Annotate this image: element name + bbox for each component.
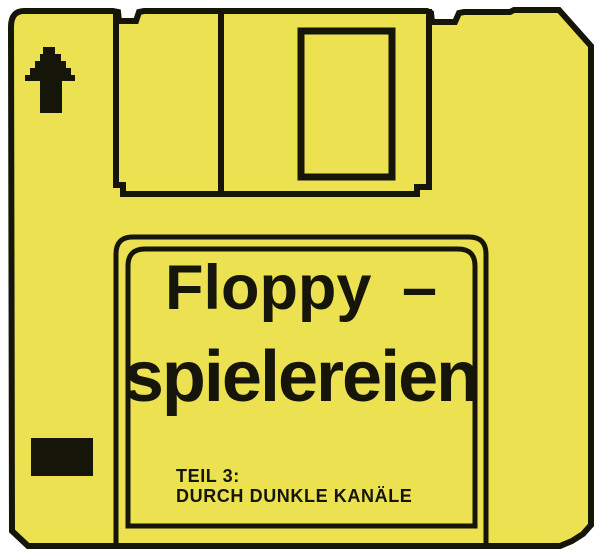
label-part-line-1: TEIL 3: bbox=[176, 466, 412, 486]
label-part-info: TEIL 3: DURCH DUNKLE KANÄLE bbox=[176, 466, 412, 506]
label-title-line-2: spielereien bbox=[103, 341, 499, 413]
label-title-line-1: Floppy – bbox=[116, 257, 486, 320]
label-part-line-2: DURCH DUNKLE KANÄLE bbox=[176, 486, 412, 506]
magazine-page: Floppy – spielereien TEIL 3: DURCH DUNKL… bbox=[0, 0, 600, 560]
write-protect-hole bbox=[31, 438, 93, 476]
